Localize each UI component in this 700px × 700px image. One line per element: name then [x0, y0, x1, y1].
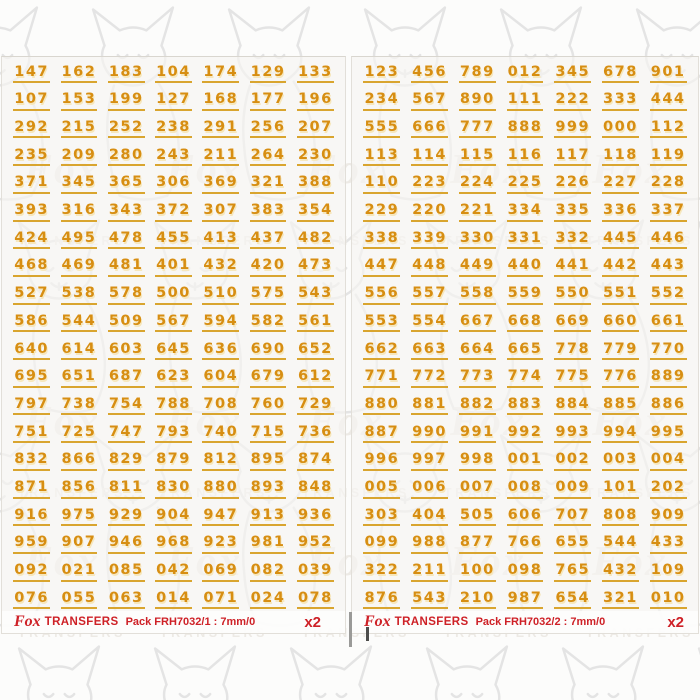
number-cell: 740 — [197, 420, 244, 448]
number-cell: 999 — [549, 115, 597, 143]
brand-transfers: TRANSFERS — [45, 616, 119, 628]
transfer-number: 333 — [602, 92, 639, 111]
number-cell: 871 — [8, 476, 55, 504]
transfer-number: 413 — [202, 231, 239, 250]
transfer-number: 808 — [602, 508, 639, 527]
transfer-number: 992 — [507, 425, 544, 444]
transfer-number: 988 — [411, 535, 448, 554]
transfer-number: 235 — [13, 148, 50, 167]
transfer-number: 339 — [411, 231, 448, 250]
transfer-number: 321 — [250, 175, 287, 194]
number-cell: 446 — [644, 226, 692, 254]
number-cell: 981 — [244, 531, 291, 559]
number-cell: 123 — [358, 60, 406, 88]
transfer-number: 024 — [250, 591, 287, 610]
fox-outline-icon — [291, 647, 377, 700]
transfer-number: 556 — [363, 286, 400, 305]
number-cell: 455 — [150, 226, 197, 254]
transfer-number: 215 — [61, 120, 98, 139]
transfer-number: 998 — [459, 452, 496, 471]
transfer-number: 442 — [602, 258, 639, 277]
number-cell: 336 — [597, 199, 645, 227]
transfer-number: 877 — [459, 535, 496, 554]
transfer-number: 880 — [202, 480, 239, 499]
transfer-number: 715 — [250, 425, 287, 444]
number-cell: 168 — [197, 88, 244, 116]
transfer-number: 832 — [13, 452, 50, 471]
number-cell: 345 — [549, 60, 597, 88]
number-cell: 024 — [244, 586, 291, 614]
number-cell: 107 — [8, 88, 55, 116]
pack-label: Pack FRH7032/2 : 7mm/0 — [476, 616, 606, 628]
transfer-number: 116 — [507, 148, 544, 167]
number-cell: 754 — [103, 392, 150, 420]
number-cell: 603 — [103, 337, 150, 365]
number-cell: 887 — [358, 420, 406, 448]
number-cell: 424 — [8, 226, 55, 254]
transfer-number: 123 — [363, 65, 400, 84]
transfer-number: 162 — [61, 65, 98, 84]
transfer-number: 336 — [602, 203, 639, 222]
transfer-number: 612 — [297, 369, 334, 388]
number-cell: 291 — [197, 115, 244, 143]
transfer-number: 509 — [108, 314, 145, 333]
number-cell: 751 — [8, 420, 55, 448]
transfer-number: 006 — [411, 480, 448, 499]
number-cell: 729 — [292, 392, 339, 420]
number-cell: 211 — [197, 143, 244, 171]
number-cell: 544 — [597, 531, 645, 559]
number-cell: 129 — [244, 60, 291, 88]
transfer-number: 959 — [13, 535, 50, 554]
number-cell: 456 — [406, 60, 454, 88]
number-cell: 889 — [644, 365, 692, 393]
transfer-number: 789 — [459, 65, 496, 84]
transfer-number: 884 — [554, 397, 591, 416]
number-cell: 990 — [406, 420, 454, 448]
number-cell: 788 — [150, 392, 197, 420]
number-cell: 004 — [644, 448, 692, 476]
transfer-number: 014 — [155, 591, 192, 610]
number-cell: 554 — [406, 309, 454, 337]
number-cell: 133 — [292, 60, 339, 88]
number-cell: 009 — [549, 476, 597, 504]
number-cell: 715 — [244, 420, 291, 448]
number-cell: 473 — [292, 254, 339, 282]
transfer-number: 003 — [602, 452, 639, 471]
transfer-number: 456 — [411, 65, 448, 84]
transfer-number: 760 — [250, 397, 287, 416]
number-cell: 766 — [501, 531, 549, 559]
transfer-number: 369 — [202, 175, 239, 194]
number-cell: 280 — [103, 143, 150, 171]
number-cell: 243 — [150, 143, 197, 171]
number-cell: 338 — [358, 226, 406, 254]
transfer-number: 871 — [13, 480, 50, 499]
number-cell: 505 — [453, 503, 501, 531]
number-cell: 113 — [358, 143, 406, 171]
transfer-number: 012 — [507, 65, 544, 84]
transfer-sheet-1: 1471621831041741291331071531991271681771… — [1, 56, 346, 634]
transfer-number: 455 — [155, 231, 192, 250]
transfer-number: 420 — [250, 258, 287, 277]
transfer-number: 338 — [363, 231, 400, 250]
transfer-number: 280 — [108, 148, 145, 167]
number-cell: 306 — [150, 171, 197, 199]
transfer-number: 771 — [363, 369, 400, 388]
number-cell: 401 — [150, 254, 197, 282]
transfer-number: 679 — [250, 369, 287, 388]
number-cell: 582 — [244, 309, 291, 337]
number-cell: 882 — [453, 392, 501, 420]
transfer-number: 092 — [13, 563, 50, 582]
number-cell: 078 — [292, 586, 339, 614]
transfer-number: 505 — [459, 508, 496, 527]
number-cell: 829 — [103, 448, 150, 476]
transfer-number: 778 — [554, 342, 591, 361]
transfer-number: 551 — [602, 286, 639, 305]
pack-label: Pack FRH7032/1 : 7mm/0 — [126, 616, 256, 628]
number-cell: 553 — [358, 309, 406, 337]
transfer-number: 652 — [297, 342, 334, 361]
transfer-number: 107 — [13, 92, 50, 111]
transfer-number: 071 — [202, 591, 239, 610]
transfer-number: 129 — [250, 65, 287, 84]
transfer-number: 447 — [363, 258, 400, 277]
number-cell: 343 — [103, 199, 150, 227]
transfer-number: 895 — [250, 452, 287, 471]
transfer-number: 968 — [155, 535, 192, 554]
number-cell: 112 — [644, 115, 692, 143]
number-cell: 993 — [549, 420, 597, 448]
number-cell: 230 — [292, 143, 339, 171]
transfer-number: 661 — [650, 314, 687, 333]
transfer-number: 882 — [459, 397, 496, 416]
transfer-number: 848 — [297, 480, 334, 499]
number-cell: 876 — [358, 586, 406, 614]
number-cell: 975 — [55, 503, 102, 531]
transfer-number: 729 — [297, 397, 334, 416]
number-cell: 098 — [501, 559, 549, 587]
transfer-number: 469 — [61, 258, 98, 277]
number-cell: 226 — [549, 171, 597, 199]
number-cell: 996 — [358, 448, 406, 476]
transfer-number: 264 — [250, 148, 287, 167]
number-cell: 909 — [644, 503, 692, 531]
number-cell: 345 — [55, 171, 102, 199]
number-cell: 885 — [597, 392, 645, 420]
transfer-number: 099 — [363, 535, 400, 554]
number-cell: 667 — [453, 309, 501, 337]
transfer-number: 196 — [297, 92, 334, 111]
transfer-number: 876 — [363, 591, 400, 610]
transfer-number: 614 — [61, 342, 98, 361]
transfer-number: 662 — [363, 342, 400, 361]
transfer-number: 779 — [602, 342, 639, 361]
number-cell: 371 — [8, 171, 55, 199]
transfer-number: 101 — [602, 480, 639, 499]
transfer-number: 996 — [363, 452, 400, 471]
transfer-number: 468 — [13, 258, 50, 277]
transfer-number: 322 — [363, 563, 400, 582]
transfer-number: 603 — [108, 342, 145, 361]
number-cell: 874 — [292, 448, 339, 476]
number-cell: 448 — [406, 254, 454, 282]
transfer-number: 307 — [202, 203, 239, 222]
number-cell: 687 — [103, 365, 150, 393]
number-cell: 114 — [406, 143, 454, 171]
transfer-number: 115 — [459, 148, 496, 167]
number-cell: 413 — [197, 226, 244, 254]
transfer-number: 446 — [650, 231, 687, 250]
number-cell: 848 — [292, 476, 339, 504]
transfer-number: 578 — [108, 286, 145, 305]
number-cell: 433 — [644, 531, 692, 559]
transfer-number: 437 — [250, 231, 287, 250]
number-cell: 183 — [103, 60, 150, 88]
number-cell: 695 — [8, 365, 55, 393]
number-cell: 334 — [501, 199, 549, 227]
number-cell: 678 — [597, 60, 645, 88]
transfer-number: 443 — [650, 258, 687, 277]
transfer-number: 098 — [507, 563, 544, 582]
transfer-number: 829 — [108, 452, 145, 471]
transfer-number: 448 — [411, 258, 448, 277]
number-cell: 893 — [244, 476, 291, 504]
number-cell: 808 — [597, 503, 645, 531]
transfer-number: 527 — [13, 286, 50, 305]
number-cell: 224 — [453, 171, 501, 199]
number-cell: 881 — [406, 392, 454, 420]
number-cell: 369 — [197, 171, 244, 199]
transfer-number: 952 — [297, 535, 334, 554]
transfer-number: 947 — [202, 508, 239, 527]
number-cell: 772 — [406, 365, 454, 393]
sheet-footer-1: Fox TRANSFERS Pack FRH7032/1 : 7mm/0 x2 — [2, 611, 345, 633]
number-cell: 432 — [197, 254, 244, 282]
transfer-number: 007 — [459, 480, 496, 499]
number-cell: 538 — [55, 282, 102, 310]
transfer-number: 708 — [202, 397, 239, 416]
number-cell: 227 — [597, 171, 645, 199]
transfer-number: 987 — [507, 591, 544, 610]
transfer-number: 114 — [411, 148, 448, 167]
number-cell: 221 — [453, 199, 501, 227]
number-cell: 797 — [8, 392, 55, 420]
number-cell: 388 — [292, 171, 339, 199]
transfer-number: 211 — [202, 148, 239, 167]
number-cell: 886 — [644, 392, 692, 420]
transfer-number: 243 — [155, 148, 192, 167]
transfer-number: 306 — [155, 175, 192, 194]
transfer-number: 225 — [507, 175, 544, 194]
number-cell: 901 — [644, 60, 692, 88]
number-cell: 660 — [597, 309, 645, 337]
number-cell: 747 — [103, 420, 150, 448]
number-cell: 725 — [55, 420, 102, 448]
number-cell: 042 — [150, 559, 197, 587]
number-cell: 662 — [358, 337, 406, 365]
number-cell: 110 — [358, 171, 406, 199]
transfer-number: 002 — [554, 452, 591, 471]
number-cell: 118 — [597, 143, 645, 171]
number-cell: 991 — [453, 420, 501, 448]
transfer-number: 668 — [507, 314, 544, 333]
brand-fox: Fox — [14, 613, 41, 631]
number-cell: 469 — [55, 254, 102, 282]
transfer-number: 582 — [250, 314, 287, 333]
number-cell: 793 — [150, 420, 197, 448]
number-cell: 229 — [358, 199, 406, 227]
number-cell: 420 — [244, 254, 291, 282]
transfer-number: 440 — [507, 258, 544, 277]
transfer-sheet-2: 1234567890123456789012345678901112223334… — [351, 56, 699, 634]
number-cell: 988 — [406, 531, 454, 559]
transfer-number: 886 — [650, 397, 687, 416]
transfer-number: 797 — [13, 397, 50, 416]
transfer-number: 544 — [602, 535, 639, 554]
transfer-number: 770 — [650, 342, 687, 361]
number-cell: 668 — [501, 309, 549, 337]
transfer-number: 740 — [202, 425, 239, 444]
number-cell: 775 — [549, 365, 597, 393]
transfer-number: 223 — [411, 175, 448, 194]
transfer-number: 751 — [13, 425, 50, 444]
number-cell: 559 — [501, 282, 549, 310]
number-cell: 063 — [103, 586, 150, 614]
transfer-number: 238 — [155, 120, 192, 139]
transfer-number: 773 — [459, 369, 496, 388]
number-cell: 771 — [358, 365, 406, 393]
transfer-number: 147 — [13, 65, 50, 84]
transfer-number: 538 — [61, 286, 98, 305]
number-cell: 332 — [549, 226, 597, 254]
number-cell: 551 — [597, 282, 645, 310]
number-cell: 440 — [501, 254, 549, 282]
transfer-number: 393 — [13, 203, 50, 222]
number-cell: 923 — [197, 531, 244, 559]
transfer-number: 021 — [61, 563, 98, 582]
number-cell: 210 — [453, 586, 501, 614]
transfer-number: 001 — [507, 452, 544, 471]
number-cell: 614 — [55, 337, 102, 365]
transfer-number: 495 — [61, 231, 98, 250]
number-cell: 995 — [644, 420, 692, 448]
number-cell: 738 — [55, 392, 102, 420]
number-cell: 449 — [453, 254, 501, 282]
number-cell: 623 — [150, 365, 197, 393]
transfer-number: 885 — [602, 397, 639, 416]
transfer-number: 085 — [108, 563, 145, 582]
number-cell: 558 — [453, 282, 501, 310]
number-cell: 994 — [597, 420, 645, 448]
transfer-number: 651 — [61, 369, 98, 388]
number-cell: 000 — [597, 115, 645, 143]
number-cell: 292 — [8, 115, 55, 143]
transfer-number: 343 — [108, 203, 145, 222]
number-grid-1: 1471621831041741291331071531991271681771… — [8, 60, 339, 614]
number-cell: 354 — [292, 199, 339, 227]
transfer-number: 923 — [202, 535, 239, 554]
transfer-number: 500 — [155, 286, 192, 305]
transfer-number: 604 — [202, 369, 239, 388]
number-cell: 383 — [244, 199, 291, 227]
transfer-number: 444 — [650, 92, 687, 111]
number-cell: 543 — [292, 282, 339, 310]
transfer-number: 883 — [507, 397, 544, 416]
transfer-number: 738 — [61, 397, 98, 416]
number-cell: 076 — [8, 586, 55, 614]
transfer-number: 482 — [297, 231, 334, 250]
number-cell: 443 — [644, 254, 692, 282]
transfer-number: 594 — [202, 314, 239, 333]
transfer-number: 110 — [363, 175, 400, 194]
number-cell: 100 — [453, 559, 501, 587]
transfer-number: 222 — [554, 92, 591, 111]
number-cell: 770 — [644, 337, 692, 365]
transfer-number: 543 — [297, 286, 334, 305]
transfer-number: 678 — [602, 65, 639, 84]
number-cell: 946 — [103, 531, 150, 559]
transfer-number: 830 — [155, 480, 192, 499]
number-cell: 947 — [197, 503, 244, 531]
transfer-number: 667 — [459, 314, 496, 333]
number-cell: 636 — [197, 337, 244, 365]
product-scan: FoxTRANSFERSFoxTRANSFERSFoxTRANSFERSFoxT… — [0, 0, 700, 700]
number-cell: 021 — [55, 559, 102, 587]
number-cell: 776 — [597, 365, 645, 393]
transfer-number: 666 — [411, 120, 448, 139]
transfer-number: 707 — [554, 508, 591, 527]
number-cell: 437 — [244, 226, 291, 254]
number-cell: 256 — [244, 115, 291, 143]
number-cell: 442 — [597, 254, 645, 282]
transfer-number: 567 — [155, 314, 192, 333]
fox-outline-icon — [155, 647, 241, 700]
transfer-number: 210 — [459, 591, 496, 610]
number-cell: 594 — [197, 309, 244, 337]
transfer-number: 856 — [61, 480, 98, 499]
number-cell: 337 — [644, 199, 692, 227]
transfer-number: 441 — [554, 258, 591, 277]
number-cell: 222 — [549, 88, 597, 116]
number-cell: 147 — [8, 60, 55, 88]
transfer-number: 766 — [507, 535, 544, 554]
fox-outline-icon — [563, 647, 649, 700]
number-cell: 936 — [292, 503, 339, 531]
number-cell: 998 — [453, 448, 501, 476]
transfer-number: 481 — [108, 258, 145, 277]
transfer-number: 777 — [459, 120, 496, 139]
transfer-number: 550 — [554, 286, 591, 305]
number-cell: 895 — [244, 448, 291, 476]
transfer-number: 252 — [108, 120, 145, 139]
transfer-number: 586 — [13, 314, 50, 333]
number-cell: 444 — [644, 88, 692, 116]
transfer-number: 432 — [602, 563, 639, 582]
transfer-number: 183 — [108, 65, 145, 84]
transfer-number: 561 — [297, 314, 334, 333]
number-cell: 555 — [358, 115, 406, 143]
transfer-number: 544 — [61, 314, 98, 333]
transfer-number: 994 — [602, 425, 639, 444]
number-cell: 760 — [244, 392, 291, 420]
transfer-number: 404 — [411, 508, 448, 527]
number-cell: 811 — [103, 476, 150, 504]
number-cell: 666 — [406, 115, 454, 143]
transfer-number: 113 — [363, 148, 400, 167]
transfer-number: 946 — [108, 535, 145, 554]
